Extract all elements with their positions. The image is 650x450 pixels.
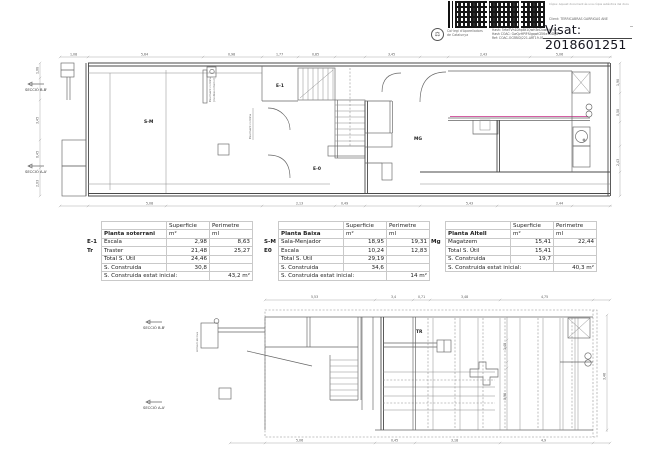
row-value: 29,19 bbox=[344, 255, 387, 263]
annotation-paviment-2: (mobles interior) bbox=[212, 78, 216, 102]
section-label-aa-top: SECCIÓ A-A' bbox=[25, 169, 47, 174]
table-title: Planta Altell bbox=[446, 230, 511, 238]
dim-label: 2,43 bbox=[616, 159, 620, 166]
table-planta-altell-box: SuperficiePerimetrePlanta Altellm²mlMgMa… bbox=[430, 221, 597, 272]
column-header: Superficie bbox=[344, 222, 387, 230]
row-value bbox=[554, 247, 597, 255]
row-value: 2,98 bbox=[167, 238, 210, 246]
table-cell bbox=[86, 230, 102, 238]
row-label: S. Construida estat inicial: bbox=[446, 263, 554, 271]
dim-label: 0,49 bbox=[341, 202, 348, 206]
row-code bbox=[86, 272, 102, 280]
annotation-armari: Armari alcova bbox=[195, 332, 199, 352]
unit-header: ml bbox=[210, 230, 253, 238]
row-label: Total S. Útil bbox=[102, 255, 167, 263]
column-header: Superficie bbox=[167, 222, 210, 230]
row-code bbox=[86, 255, 102, 263]
section-label-aa-bottom: SECCIÓ A-A' bbox=[143, 405, 165, 410]
dim-label: 2,03 bbox=[36, 180, 40, 187]
row-value: 34,6 bbox=[344, 263, 387, 271]
row-value: 10,24 bbox=[344, 247, 387, 255]
row-code: S-M bbox=[263, 238, 279, 246]
dim-label: 3,45 bbox=[36, 117, 40, 124]
row-code bbox=[430, 255, 446, 263]
row-value: 30,8 bbox=[167, 263, 210, 271]
floor-plan-altell: Armari alcova bbox=[143, 295, 611, 444]
row-value: 43,2 m² bbox=[210, 272, 253, 280]
dim-label: 4,75 bbox=[541, 295, 548, 299]
table-planta-soterrani: SuperficiePerimetrePlanta soterranim²mlE… bbox=[86, 221, 253, 281]
floor-plan-upper: S-M E-1 E-0 MG Paviment continu (mobles … bbox=[25, 53, 621, 208]
barcode-guard-bar bbox=[452, 1, 453, 28]
row-label: Escala bbox=[102, 238, 167, 246]
row-code bbox=[263, 272, 279, 280]
stamp-edge-mark bbox=[630, 26, 633, 27]
room-label-escala-e1: E-1 bbox=[276, 83, 284, 89]
dim-label: 5,06 bbox=[296, 439, 303, 443]
barcode-guard-bar bbox=[448, 1, 450, 28]
row-value: 25,27 bbox=[210, 247, 253, 255]
barcode-gap bbox=[487, 1, 489, 28]
row-code: E0 bbox=[263, 247, 279, 255]
row-label: S. Construida bbox=[102, 263, 167, 271]
table-planta-baixa: SuperficiePerimetrePlanta Baixam²mlS-MSa… bbox=[263, 221, 430, 281]
room-label-sala-menjador: S-M bbox=[144, 119, 153, 125]
dim-label: 3,18 bbox=[451, 439, 458, 443]
visat-barcode bbox=[455, 1, 545, 28]
row-code: Mg bbox=[430, 238, 446, 246]
dim-label: 1,45 bbox=[503, 343, 507, 350]
dim-label: 0,98 bbox=[228, 53, 235, 57]
row-label: S. Construida estat inicial: bbox=[279, 272, 387, 280]
column-header: Perimetre bbox=[387, 222, 430, 230]
dim-label: 0,45 bbox=[36, 151, 40, 158]
dim-label: 1,08 bbox=[70, 53, 77, 57]
unit-header: m² bbox=[344, 230, 387, 238]
unit-header: ml bbox=[554, 230, 597, 238]
dim-label: 3,4 bbox=[391, 295, 396, 299]
table-planta-altell: SuperficiePerimetrePlanta Altellm²mlMgMa… bbox=[430, 221, 597, 272]
table-cell bbox=[430, 230, 446, 238]
row-value: 19,7 bbox=[511, 255, 554, 263]
row-value: 19,31 bbox=[387, 238, 430, 246]
row-value: 24,46 bbox=[167, 255, 210, 263]
copy-authenticity-line: Còpia: Aquest document és una còpia autè… bbox=[549, 2, 629, 6]
table-cell bbox=[86, 222, 102, 230]
dim-label: 2,13 bbox=[296, 202, 303, 206]
row-code bbox=[430, 247, 446, 255]
room-label-tr: TR bbox=[416, 329, 423, 335]
table-title: Planta Baixa bbox=[279, 230, 344, 238]
college-logo-icon: ⚖ bbox=[431, 28, 444, 41]
dim-label: 0,85 bbox=[312, 53, 319, 57]
row-label: S. Construida bbox=[446, 255, 511, 263]
row-label: Sala-Menjador bbox=[279, 238, 344, 246]
row-value: 12,83 bbox=[387, 247, 430, 255]
row-code bbox=[86, 263, 102, 271]
college-name: Col·legi d'Aparelladors de Catalunya bbox=[447, 29, 483, 37]
row-value bbox=[210, 255, 253, 263]
row-label: Total S. Útil bbox=[279, 255, 344, 263]
row-code bbox=[263, 255, 279, 263]
dim-label: 0,98 bbox=[503, 393, 507, 400]
unit-header: m² bbox=[511, 230, 554, 238]
dim-label: 2,43 bbox=[480, 53, 487, 57]
dim-label: 0,71 bbox=[418, 295, 425, 299]
dim-label: 5,06 bbox=[556, 53, 563, 57]
dim-label: 3,48 bbox=[461, 295, 468, 299]
row-value bbox=[210, 263, 253, 271]
dim-label: 5,08 bbox=[146, 202, 153, 206]
room-label-escala-e0: E-0 bbox=[313, 166, 321, 172]
table-title: Planta soterrani bbox=[102, 230, 167, 238]
visat-underline bbox=[543, 38, 632, 39]
row-value: 18,95 bbox=[344, 238, 387, 246]
dim-label: 1,98 bbox=[616, 79, 620, 86]
row-code: Tr bbox=[86, 247, 102, 255]
visat-number: Visat: 2018601251 bbox=[545, 22, 650, 52]
row-value: 15,41 bbox=[511, 238, 554, 246]
row-label: Escala bbox=[279, 247, 344, 255]
row-value bbox=[387, 255, 430, 263]
dim-label: 0,45 bbox=[391, 439, 398, 443]
unit-header: m² bbox=[167, 230, 210, 238]
row-code: E-1 bbox=[86, 238, 102, 246]
row-label: S. Construida bbox=[279, 263, 344, 271]
table-cell bbox=[446, 222, 511, 230]
dim-label: 1,08 bbox=[36, 67, 40, 74]
row-value bbox=[554, 255, 597, 263]
dim-label: 5,64 bbox=[141, 53, 148, 57]
column-header: Superficie bbox=[511, 222, 554, 230]
table-cell bbox=[430, 222, 446, 230]
dim-label: 5,43 bbox=[466, 202, 473, 206]
table-cell bbox=[102, 222, 167, 230]
row-label: Total S. Útil bbox=[446, 247, 511, 255]
annotation-paviment-3: Paviment continu bbox=[248, 114, 252, 139]
row-label: Magatzem bbox=[446, 238, 511, 246]
row-value: 22,44 bbox=[554, 238, 597, 246]
column-header: Perimetre bbox=[210, 222, 253, 230]
room-label-magatzem: MG bbox=[414, 136, 422, 142]
table-cell bbox=[263, 230, 279, 238]
table-cell bbox=[279, 222, 344, 230]
dim-label: 0,58 bbox=[616, 109, 620, 116]
section-label-bb-bottom: SECCIÓ B-B' bbox=[143, 325, 165, 330]
table-planta-soterrani-box: SuperficiePerimetrePlanta soterranim²mlE… bbox=[86, 221, 253, 281]
row-value: 21,48 bbox=[167, 247, 210, 255]
row-value bbox=[387, 263, 430, 271]
unit-header: ml bbox=[387, 230, 430, 238]
row-value: 8,63 bbox=[210, 238, 253, 246]
section-label-bb-top: SECCIÓ B-B' bbox=[25, 87, 47, 92]
client-line: Client: TERRICABRAS GARRIGAS ANE bbox=[549, 17, 608, 21]
column-header: Perimetre bbox=[554, 222, 597, 230]
barcode-gap bbox=[519, 1, 521, 28]
college-name-line2: de Catalunya bbox=[447, 33, 483, 37]
row-code bbox=[263, 263, 279, 271]
row-label: Traster bbox=[102, 247, 167, 255]
dim-label: 5,53 bbox=[311, 295, 318, 299]
dim-label: 2,44 bbox=[556, 202, 563, 206]
dim-label: 3,46 bbox=[603, 373, 607, 380]
row-label: S. Construida estat inicial: bbox=[102, 272, 210, 280]
table-planta-baixa-box: SuperficiePerimetrePlanta Baixam²mlS-MSa… bbox=[263, 221, 430, 281]
dim-label: 1,77 bbox=[276, 53, 283, 57]
table-cell bbox=[263, 222, 279, 230]
row-code bbox=[430, 263, 446, 271]
dim-label: 4,9 bbox=[541, 439, 546, 443]
row-value: 14 m² bbox=[387, 272, 430, 280]
row-value: 15,41 bbox=[511, 247, 554, 255]
dim-label: 3,45 bbox=[388, 53, 395, 57]
row-value: 40,3 m² bbox=[554, 263, 597, 271]
drawing-sheet: S-M E-1 E-0 MG Paviment continu (mobles … bbox=[0, 0, 650, 450]
